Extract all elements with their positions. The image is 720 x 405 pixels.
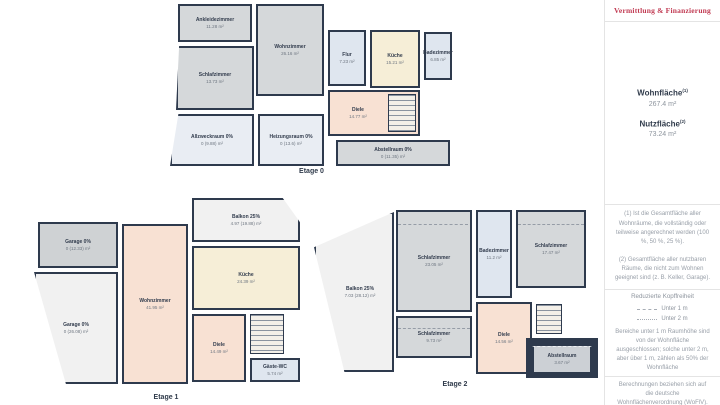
floorplan-etage-0: Ankleidezimmer11.28 m² Wohnzimmer26.16 m…: [168, 2, 455, 166]
etage0-room-flur: Flur7.23 m²: [328, 30, 366, 86]
stairs: [250, 314, 284, 354]
etage0-room-wohnzimmer: Wohnzimmer26.16 m²: [256, 4, 324, 96]
floor-label-etage-0: Etage 0: [168, 168, 455, 175]
room-name-label: Abstellraum: [548, 353, 577, 359]
room-area-label: 5.74 m²: [263, 371, 287, 376]
room-name-label: Schlafzimmer: [535, 243, 568, 249]
etage2-room-balkon: Balkon 25%7.03 (28.12) m²: [314, 212, 394, 372]
room-name-label: Abstellraum 0%: [374, 147, 412, 153]
room-area-label: 26.16 m²: [274, 51, 305, 56]
etage0-room-kueche: Küche15.21 m²: [370, 30, 420, 88]
dashed-line-icon: [637, 309, 657, 310]
room-name-label: Diele: [210, 342, 228, 348]
brand-logo-text: Vermittlung & Finanzierung: [614, 6, 711, 15]
room-name-label: Badezimmer: [479, 248, 509, 254]
etage0-room-heizungsraum: Heizungsraum 0%0 (13.6) m²: [258, 114, 324, 166]
etage0-room-schlafzimmer: Schlafzimmer13.73 m²: [176, 46, 254, 110]
room-area-label: 11.28 m²: [196, 24, 234, 29]
room-name-label: Schlafzimmer: [199, 72, 232, 78]
etage2-room-diele: Diele14.56 m²: [476, 302, 532, 374]
legend-note: Bereiche unter 1 m Raumhöhe sind von der…: [614, 328, 711, 373]
room-name-label: Allzweckraum 0%: [191, 134, 233, 140]
reduced-headroom-line: [398, 224, 468, 225]
etage1-room-garage-1: Garage 0%0 (12.33) m²: [38, 222, 118, 268]
room-area-label: 24.39 m²: [237, 279, 255, 284]
room-name-label: Garage 0%: [65, 239, 91, 245]
wohnflaeche-text: Wohnfläche: [637, 89, 682, 98]
room-area-label: 4.97 (19.88) m²: [231, 221, 262, 226]
room-name-label: Flur: [339, 52, 354, 58]
room-name-label: Diele: [349, 107, 367, 113]
room-area-label: 7.23 m²: [339, 59, 354, 64]
nutzflaeche-label: Nutzfläche(2): [640, 119, 686, 129]
room-name-label: Ankleidezimmer: [196, 17, 234, 23]
etage2-room-schlafzimmer-1: Schlafzimmer23.05 m²: [396, 210, 472, 312]
etage0-room-badezimmer: Badezimmer6.85 m²: [424, 32, 452, 80]
etage1-room-wohnzimmer: Wohnzimmer41.95 m²: [122, 224, 188, 384]
legend-row-under-2m: Unter 2 m: [637, 316, 687, 322]
info-sidebar: Vermittlung & Finanzierung Wohnfläche(1)…: [604, 0, 720, 405]
nutzflaeche-footnote-ref: (2): [680, 119, 686, 124]
etage2-room-schlafzimmer-3: Schlafzimmer9.73 m²: [396, 316, 472, 358]
room-area-label: 13.73 m²: [199, 79, 232, 84]
footnotes-section: (1) Ist die Gesamtfläche aller Wohnräume…: [605, 205, 720, 290]
disclaimer-section: Berechnungen beziehen sich auf die deuts…: [605, 377, 720, 405]
room-area-label: 41.95 m²: [139, 305, 170, 310]
room-name-label: Balkon 25%: [345, 286, 376, 292]
wohnflaeche-footnote-ref: (1): [682, 88, 688, 93]
floor-label-etage-2: Etage 2: [312, 381, 598, 388]
legend-row-under-1m: Unter 1 m: [637, 306, 687, 312]
room-name-label: Garage 0%: [63, 322, 89, 328]
disclaimer-text: Berechnungen beziehen sich auf die deuts…: [614, 381, 711, 405]
room-area-label: 11.2 m²: [479, 255, 509, 260]
room-area-label: 7.03 (28.12) m²: [345, 293, 376, 298]
room-area-label: 0 (11.35) m²: [374, 154, 412, 159]
room-area-label: 0 (26.08) m²: [63, 329, 89, 334]
room-name-label: Küche: [237, 272, 255, 278]
legend-title: Reduzierte Kopffreiheit: [631, 293, 694, 300]
room-name-label: Heizungsraum 0%: [269, 134, 312, 140]
room-area-label: 9.73 m²: [418, 338, 451, 343]
room-area-label: 14.77 m²: [349, 114, 367, 119]
etage1-room-kueche: Küche24.39 m²: [192, 246, 300, 310]
room-area-label: 0 (13.6) m²: [269, 141, 312, 146]
area-summary-section: Wohnfläche(1) 267.4 m² Nutzfläche(2) 73.…: [605, 22, 720, 205]
reduced-headroom-line: [398, 328, 470, 329]
room-area-label: 0 (12.33) m²: [65, 246, 91, 251]
room-name-label: Badezimmer: [423, 50, 453, 56]
room-area-label: 6.85 m²: [423, 57, 453, 62]
reduced-headroom-line: [518, 224, 584, 225]
etage1-room-garage-2: Garage 0%0 (26.08) m²: [34, 272, 118, 384]
etage0-room-allzweckraum: Allzweckraum 0%0 (9.88) m²: [170, 114, 254, 166]
etage2-room-badezimmer: Badezimmer11.2 m²: [476, 210, 512, 298]
room-area-label: 23.05 m²: [418, 262, 451, 267]
room-area-label: 15.21 m²: [386, 60, 404, 65]
etage0-room-ankleidezimmer: Ankleidezimmer11.28 m²: [178, 4, 252, 42]
etage1-room-diele: Diele14.49 m²: [192, 314, 246, 382]
brand-section: Vermittlung & Finanzierung: [605, 0, 720, 22]
room-name-label: Wohnzimmer: [139, 298, 170, 304]
room-name-label: Küche: [386, 53, 404, 59]
room-name-label: Diele: [495, 332, 513, 338]
floorplan-etage-1: Garage 0%0 (12.33) m² Garage 0%0 (26.08)…: [30, 196, 302, 390]
wohnflaeche-value: 267.4 m²: [649, 101, 677, 108]
room-name-label: Schlafzimmer: [418, 255, 451, 261]
room-area-label: 0 (9.88) m²: [191, 141, 233, 146]
footnote-1: (1) Ist die Gesamtfläche aller Wohnräume…: [614, 210, 711, 247]
room-name-label: Gäste-WC: [263, 364, 287, 370]
legend-label-under-1m: Unter 1 m: [661, 306, 687, 312]
stairs: [536, 304, 562, 334]
floor-label-etage-1: Etage 1: [30, 394, 302, 401]
etage2-room-abstellraum: Abstellraum3.67 m²: [532, 346, 592, 374]
legend-section: Reduzierte Kopffreiheit Unter 1 m Unter …: [605, 290, 720, 377]
etage2-room-schlafzimmer-2: Schlafzimmer17.47 m²: [516, 210, 586, 288]
wohnflaeche-label: Wohnfläche(1): [637, 88, 688, 98]
room-area-label: 14.56 m²: [495, 339, 513, 344]
dotted-line-icon: [637, 319, 657, 320]
room-name-label: Schlafzimmer: [418, 331, 451, 337]
nutzflaeche-text: Nutzfläche: [640, 119, 680, 128]
floorplan-page: Ankleidezimmer11.28 m² Wohnzimmer26.16 m…: [0, 0, 720, 405]
room-area-label: 17.47 m²: [535, 250, 568, 255]
footnote-2: (2) Gesamtfläche aller nutzbaren Räume, …: [614, 256, 711, 284]
room-area-label: 14.49 m²: [210, 349, 228, 354]
etage0-room-abstellraum: Abstellraum 0%0 (11.35) m²: [336, 140, 450, 166]
room-area-label: 3.67 m²: [548, 360, 577, 365]
nutzflaeche-value: 73.24 m²: [649, 131, 677, 138]
floorplan-etage-2: Balkon 25%7.03 (28.12) m² Schlafzimmer23…: [312, 200, 598, 378]
etage1-room-gaeste-wc: Gäste-WC5.74 m²: [250, 358, 300, 382]
stairs: [388, 94, 416, 132]
room-name-label: Wohnzimmer: [274, 44, 305, 50]
etage1-room-balkon: Balkon 25%4.97 (19.88) m²: [192, 198, 300, 242]
legend-label-under-2m: Unter 2 m: [661, 316, 687, 322]
room-name-label: Balkon 25%: [231, 214, 262, 220]
